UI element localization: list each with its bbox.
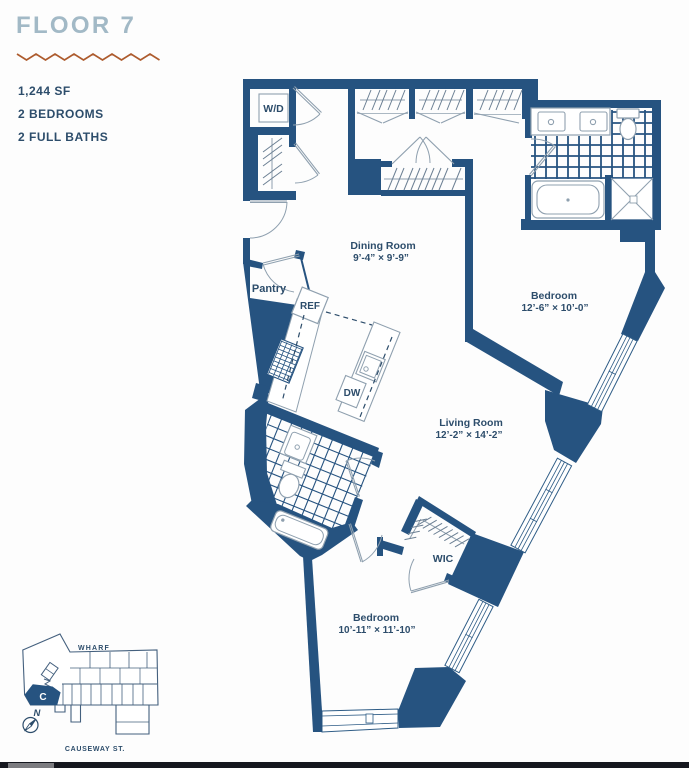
svg-text:C: C (39, 692, 46, 703)
svg-text:W/D: W/D (263, 103, 284, 115)
svg-text:Bedroom: Bedroom (353, 612, 399, 624)
svg-text:12’-6” × 10’-0”: 12’-6” × 10’-0” (522, 303, 589, 314)
svg-text:2 FULL BATHS: 2 FULL BATHS (18, 130, 108, 144)
svg-text:WIC: WIC (433, 553, 454, 565)
svg-text:Pantry: Pantry (252, 283, 287, 295)
svg-text:9’-4” × 9’-9”: 9’-4” × 9’-9” (353, 253, 409, 264)
svg-text:DW: DW (344, 388, 361, 399)
svg-text:N: N (34, 708, 42, 719)
svg-text:Living Room: Living Room (439, 417, 503, 429)
svg-text:REF: REF (300, 301, 320, 312)
svg-text:FLOOR 7: FLOOR 7 (16, 12, 136, 39)
svg-text:2 BEDROOMS: 2 BEDROOMS (18, 107, 104, 121)
svg-text:1,244 SF: 1,244 SF (18, 84, 71, 98)
svg-text:Bedroom: Bedroom (531, 290, 577, 302)
svg-text:WHARF: WHARF (78, 645, 110, 652)
svg-text:Dining Room: Dining Room (350, 240, 415, 252)
svg-text:12’-2” × 14’-2”: 12’-2” × 14’-2” (436, 430, 503, 441)
svg-text:10’-11” × 11’-10”: 10’-11” × 11’-10” (338, 625, 415, 636)
svg-text:CAUSEWAY ST.: CAUSEWAY ST. (65, 746, 125, 753)
